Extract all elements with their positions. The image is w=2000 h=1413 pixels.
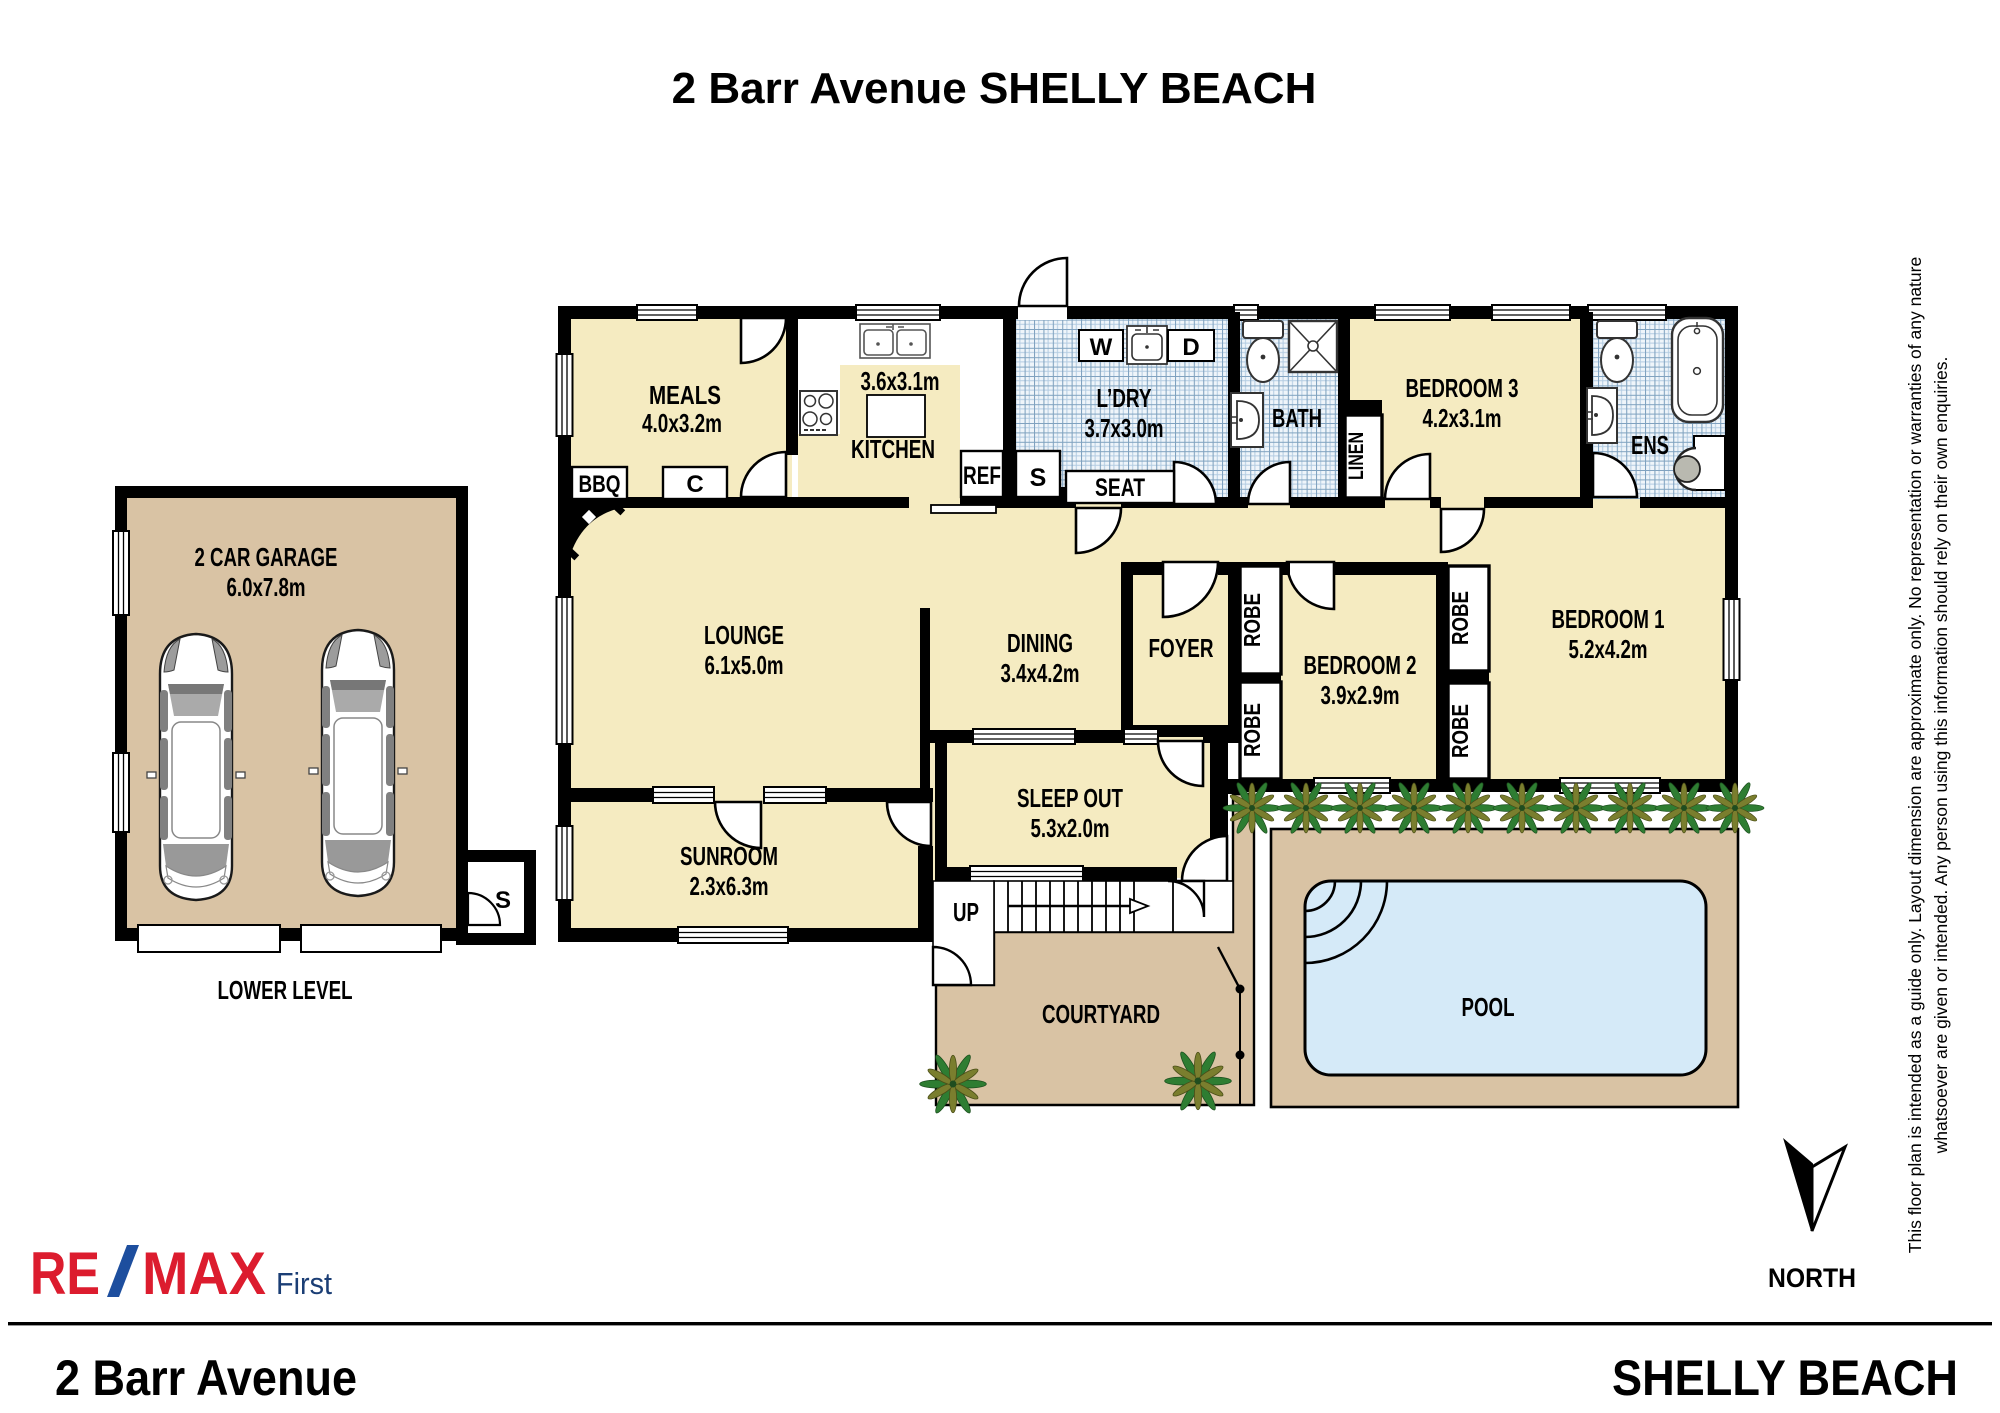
svg-text:3.4x4.2m: 3.4x4.2m [1001,658,1080,688]
svg-text:This floor plan is intended as: This floor plan is intended as a guide o… [1905,257,1925,1253]
svg-text:MEALS: MEALS [649,380,721,410]
svg-text:L’DRY: L’DRY [1097,383,1152,413]
svg-text:LOUNGE: LOUNGE [704,620,784,650]
svg-text:4.0x3.2m: 4.0x3.2m [642,408,722,438]
svg-text:3.9x2.9m: 3.9x2.9m [1321,680,1400,710]
svg-text:W: W [1090,334,1113,361]
svg-text:BEDROOM 3: BEDROOM 3 [1406,373,1519,403]
svg-text:3.7x3.0m: 3.7x3.0m [1085,413,1164,443]
svg-text:BBQ: BBQ [579,471,621,498]
svg-text:SLEEP OUT: SLEEP OUT [1017,783,1123,813]
svg-text:ENS: ENS [1631,430,1669,460]
svg-text:KITCHEN: KITCHEN [851,434,935,464]
svg-text:LINEN: LINEN [1345,432,1368,480]
svg-text:MAX: MAX [142,1240,266,1307]
svg-text:3.6x3.1m: 3.6x3.1m [861,366,940,396]
svg-text:2 CAR GARAGE: 2 CAR GARAGE [195,542,338,572]
svg-text:RE: RE [30,1240,100,1307]
svg-text:DINING: DINING [1007,628,1073,658]
svg-text:ROBE: ROBE [1239,593,1265,647]
svg-text:SHELLY BEACH: SHELLY BEACH [1612,1350,1958,1406]
svg-text:BEDROOM 2: BEDROOM 2 [1304,650,1417,680]
svg-text:4.2x3.1m: 4.2x3.1m [1423,403,1502,433]
svg-text:ROBE: ROBE [1447,704,1473,758]
svg-text:6.0x7.8m: 6.0x7.8m [227,572,306,602]
svg-text:5.3x2.0m: 5.3x2.0m [1031,813,1110,843]
svg-text:POOL: POOL [1462,992,1515,1022]
svg-text:FOYER: FOYER [1149,633,1214,663]
svg-text:2.3x6.3m: 2.3x6.3m [690,871,769,901]
svg-text:2 Barr Avenue SHELLY BEACH: 2 Barr Avenue SHELLY BEACH [672,64,1317,113]
svg-text:S: S [1030,464,1047,492]
svg-text:6.1x5.0m: 6.1x5.0m [705,650,784,680]
svg-text:SEAT: SEAT [1095,474,1145,502]
svg-text:whatsoever are given or intend: whatsoever are given or intended. Any pe… [1931,357,1951,1155]
svg-text:ROBE: ROBE [1239,703,1265,757]
svg-text:ROBE: ROBE [1447,591,1473,645]
svg-text:BEDROOM 1: BEDROOM 1 [1552,604,1665,634]
svg-text:2 Barr Avenue: 2 Barr Avenue [55,1350,357,1406]
svg-text:D: D [1182,334,1199,361]
svg-text:BATH: BATH [1272,403,1322,433]
svg-text:REF: REF [963,462,1001,490]
svg-text:5.2x4.2m: 5.2x4.2m [1569,634,1648,664]
svg-text:COURTYARD: COURTYARD [1042,999,1160,1029]
svg-text:UP: UP [953,897,979,927]
svg-text:First: First [276,1266,332,1301]
svg-text:SUNROOM: SUNROOM [680,841,778,871]
svg-text:C: C [686,471,703,498]
svg-text:LOWER LEVEL: LOWER LEVEL [218,975,353,1005]
svg-text:S: S [495,887,511,914]
svg-text:NORTH: NORTH [1768,1263,1856,1293]
